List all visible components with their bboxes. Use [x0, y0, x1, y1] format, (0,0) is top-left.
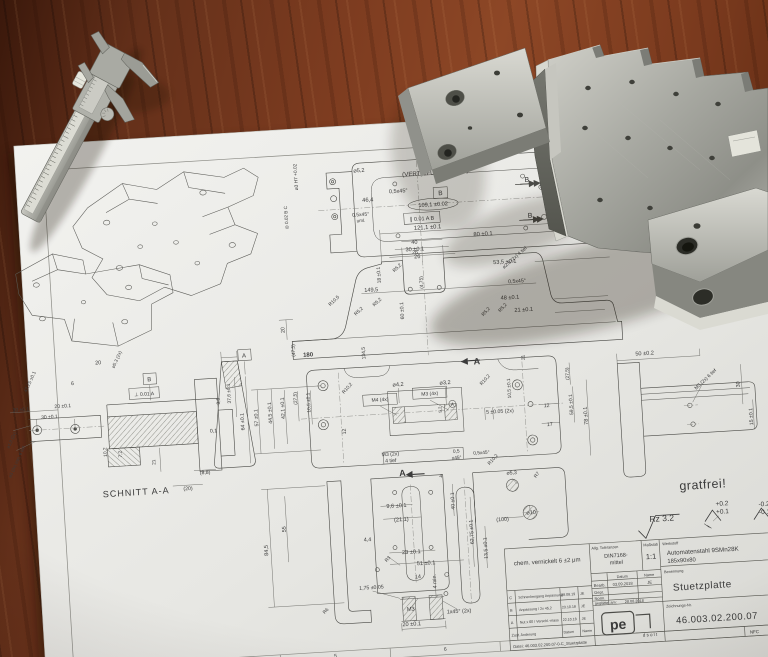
dim-label: 40: [411, 240, 418, 246]
rev-date: 28.08.19: [561, 592, 575, 597]
rev-id: Zust.: [512, 633, 521, 638]
dim-label: M3 (2x): [381, 451, 399, 458]
dim-label: ⌀3,2: [439, 380, 451, 387]
col-date: Datum: [617, 574, 628, 579]
row-bearb-name: JE: [647, 579, 652, 584]
dim-label: 30 ±0.1: [12, 407, 29, 414]
dim-label: M3 (4x): [421, 391, 439, 398]
dim-label: 55: [282, 526, 288, 532]
dim-label: 64 ±0.1: [240, 413, 247, 431]
col-name: Name: [644, 573, 654, 578]
dim-label: 10,5 ±0.1: [506, 378, 513, 399]
dim-label: 21: [520, 354, 526, 360]
dim-label: 14: [415, 574, 421, 580]
dim-label: uml.: [357, 218, 366, 224]
dim-label: 4 min.: [432, 574, 439, 588]
dim-label: 9,6 ±0.1: [386, 503, 407, 510]
dim-label: x45°: [452, 455, 462, 462]
row-bearb: Bearb.: [594, 582, 606, 588]
dim-label: 57 ±0.1: [253, 409, 260, 427]
dim-label: 3,5: [216, 397, 222, 404]
dim-label: +0.2: [715, 500, 729, 508]
dim-label: ⌀10: [526, 510, 536, 517]
dim-label: 20 ±0.1: [402, 621, 421, 628]
dim-label: 10,5 ±0.1: [305, 392, 312, 413]
dim-label: M3: [407, 607, 415, 613]
dim-label: 4: [439, 474, 442, 480]
dim-label: 23 ±0.1: [402, 549, 421, 556]
row-gepr: Gepr.: [594, 589, 604, 595]
dim-label: 0,1: [210, 428, 218, 434]
tolerance-value2: mittel: [610, 560, 623, 567]
dim-label: ⌀5,3: [506, 470, 517, 477]
dim-label: 84,5: [264, 545, 271, 556]
dim-label: ⌀5,2: [353, 168, 365, 175]
dim-label: 50 ±0.2: [635, 350, 654, 357]
dim-label: 18 ±0.1: [376, 266, 383, 283]
dim-label: 78 ±0.1: [583, 407, 590, 425]
dim-label: A: [399, 468, 407, 478]
photo-scene: ⌀5,2(VERTIEFUNG 0,1 mm)⌀3 H7 +0.02◎ 0.02…: [0, 0, 768, 657]
dim-label: 20: [95, 360, 101, 366]
logo-subtext: dsolt: [643, 632, 659, 638]
dim-label: 4 tief: [385, 458, 397, 465]
dim-label: ⌀4,2: [392, 382, 404, 389]
logo-text: pe: [609, 616, 626, 633]
dim-label: A: [242, 353, 246, 359]
dim-label: 20: [280, 327, 286, 333]
dim-label: (8,8): [200, 470, 211, 477]
nfc-cell: NFC: [750, 629, 760, 635]
dim-label: 51 ±0.1: [417, 560, 436, 567]
dim-label: 12: [544, 403, 550, 409]
dim-label: ⊥ 0.01 A: [134, 391, 155, 398]
dim-label: 7,2: [118, 450, 124, 457]
dim-label: (100): [496, 517, 509, 524]
rev-date: Datum: [563, 630, 574, 635]
dim-label: 60 ±0.1: [399, 302, 406, 320]
rev-name: Name: [582, 629, 592, 634]
dim-label: (4,75): [418, 276, 425, 289]
scene-render: ⌀5,2(VERTIEFUNG 0,1 mm)⌀3 H7 +0.02◎ 0.02…: [0, 0, 768, 657]
dim-label: M4 (4x): [371, 397, 389, 404]
dim-label: +0.1: [716, 508, 730, 516]
dim-label: 46,4: [362, 197, 374, 204]
dim-label: 40 ±0.1: [450, 492, 457, 510]
rev-date: 23.10.18: [562, 605, 576, 610]
dim-label: 17: [547, 422, 553, 428]
dim-label: B: [147, 377, 151, 383]
dim-label: 6: [71, 381, 74, 387]
dim-label: 15 ±0.1: [748, 408, 755, 426]
dim-label: ⌀3 (2x) min. 6 tief: [7, 445, 26, 479]
dim-label: B: [524, 177, 529, 184]
dim-label: 10,2: [102, 447, 109, 457]
rev-date: 22.10.18: [563, 617, 577, 622]
dim-label: A: [473, 356, 481, 366]
dim-label: (27,5): [564, 367, 571, 380]
dim-label: (27,5): [292, 392, 299, 405]
dim-label: 0,5: [453, 448, 460, 454]
dim-label: -0.2: [758, 501, 768, 509]
dim-label: ⌀1,8 (2x): [6, 431, 18, 450]
dim-label: 37,6 ±0.1: [226, 383, 233, 404]
dim-label: 26: [412, 250, 418, 256]
dim-label: 149,5: [364, 287, 378, 294]
dim-label: 20 ±0.1: [54, 403, 71, 410]
dim-label: 4,4: [364, 537, 372, 543]
row-norm: Norm.: [594, 595, 605, 601]
dim-label: 180: [303, 352, 314, 359]
dim-label: -0.1: [759, 509, 768, 517]
rev-id: C: [509, 596, 512, 600]
dim-label: 59,5 ±0.1: [568, 394, 575, 415]
dim-label: 30: [736, 381, 742, 387]
dim-label: 12: [342, 428, 348, 434]
dim-label: 30 ±0.1: [41, 414, 58, 421]
dim-label: (47,5): [290, 344, 297, 357]
dim-label: 21: [151, 459, 157, 465]
dim-label: (21,1): [394, 517, 409, 524]
dim-label: gratfrei!: [679, 476, 727, 493]
dim-label: 134,5: [361, 346, 368, 359]
dim-label: 5,2: [437, 406, 442, 413]
dim-label: Rz 3.2: [649, 513, 674, 524]
scale-value: 1:1: [646, 552, 657, 562]
dim-label: 0,5x45°: [473, 450, 490, 457]
dim-label: (20): [183, 486, 193, 493]
